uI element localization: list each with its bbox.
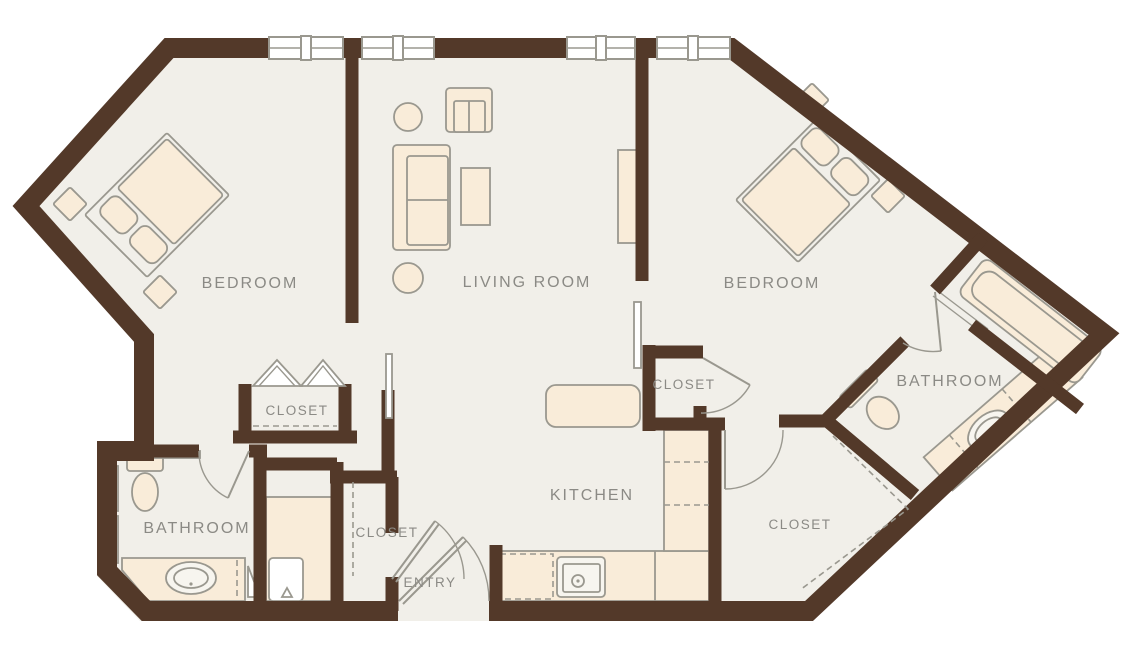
round-table (394, 103, 422, 131)
window (269, 36, 343, 60)
room-label-entry: ENTRY (403, 575, 456, 590)
armchair (446, 88, 492, 132)
room-label-closet-bedroom-left: CLOSET (265, 403, 328, 418)
room-label-bedroom-right: BEDROOM (724, 275, 821, 292)
room-label-closet-middle: CLOSET (652, 377, 715, 392)
room-label-bedroom-left: BEDROOM (202, 275, 299, 292)
room-label-closet-walk-in: CLOSET (768, 517, 831, 532)
pocket-door (634, 302, 641, 368)
kitchen-sink (557, 557, 605, 597)
window (657, 36, 730, 60)
pocket-door (386, 354, 392, 418)
room-label-living-room: LIVING ROOM (463, 274, 592, 291)
room-label-bathroom-right: BATHROOM (896, 373, 1003, 390)
room-label-bathroom-left: BATHROOM (143, 520, 250, 537)
room-label-closet-entry: CLOSET (355, 525, 418, 540)
sofa (393, 145, 450, 250)
kitchen-island (546, 385, 640, 427)
room-label-kitchen: KITCHEN (550, 487, 634, 504)
washer-dryer (266, 497, 332, 601)
kitchen-counter (664, 430, 709, 551)
side-table (461, 168, 490, 225)
media-console (618, 150, 637, 243)
window (567, 36, 635, 60)
floor-plan-page: BEDROOM LIVING ROOM BEDROOM CLOSET CLOSE… (0, 0, 1132, 654)
floor-plan-svg: BEDROOM LIVING ROOM BEDROOM CLOSET CLOSE… (0, 0, 1132, 654)
window (362, 36, 434, 60)
round-table (393, 263, 423, 293)
